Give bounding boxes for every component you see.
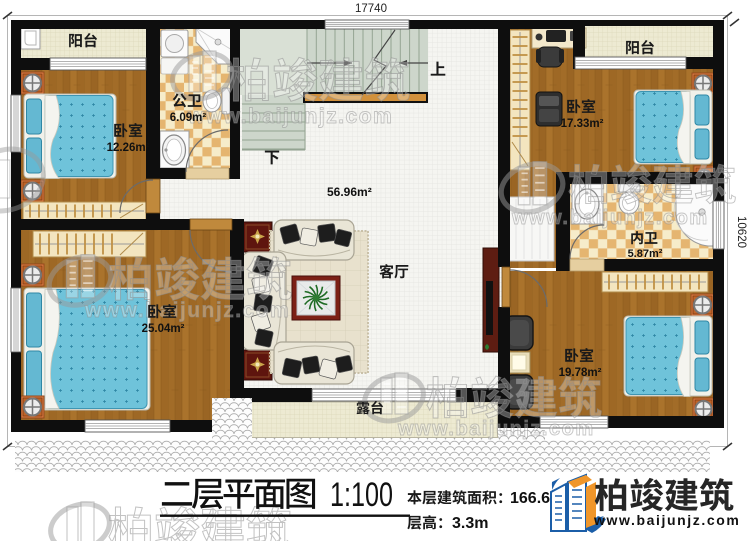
svg-text:17.33m²: 17.33m² [561,118,604,130]
svg-text:17740: 17740 [355,3,387,15]
svg-text:1:100: 1:100 [330,476,393,514]
svg-text:10620: 10620 [735,216,747,248]
svg-text:www.baijunjz.com: www.baijunjz.com [84,299,290,322]
svg-text:5.87m²: 5.87m² [628,248,663,260]
svg-text:19.78m²: 19.78m² [559,367,602,379]
svg-text:56.96m²: 56.96m² [327,185,372,199]
svg-text:12.26m²: 12.26m² [107,142,150,154]
svg-text:25.04m²: 25.04m² [142,323,185,335]
svg-text:www.baijunjz.com: www.baijunjz.com [593,512,740,528]
svg-text:www.baijunjz.com: www.baijunjz.com [511,207,709,229]
svg-text:6.09m²: 6.09m² [170,112,207,124]
svg-text:www.baijunjz.com: www.baijunjz.com [397,418,595,440]
svg-text:3.3m: 3.3m [452,515,488,532]
svg-text:www.baijunjz.com: www.baijunjz.com [187,105,393,128]
